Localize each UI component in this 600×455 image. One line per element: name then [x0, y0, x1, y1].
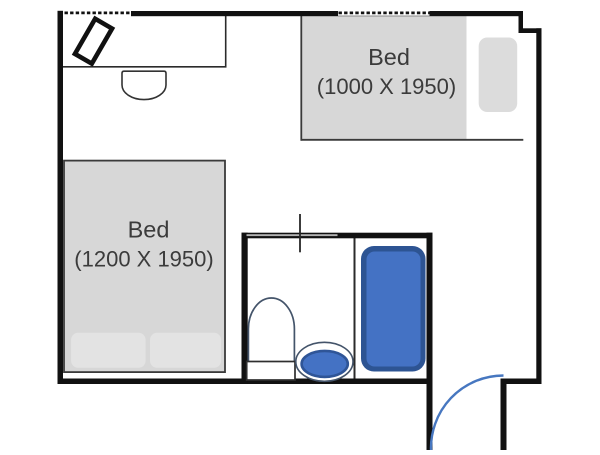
svg-text:(1000 X 1950): (1000 X 1950) [317, 74, 456, 99]
svg-text:Bed: Bed [128, 216, 170, 242]
svg-text:Bed: Bed [368, 44, 410, 70]
svg-text:(1200 X 1950): (1200 X 1950) [74, 247, 213, 272]
